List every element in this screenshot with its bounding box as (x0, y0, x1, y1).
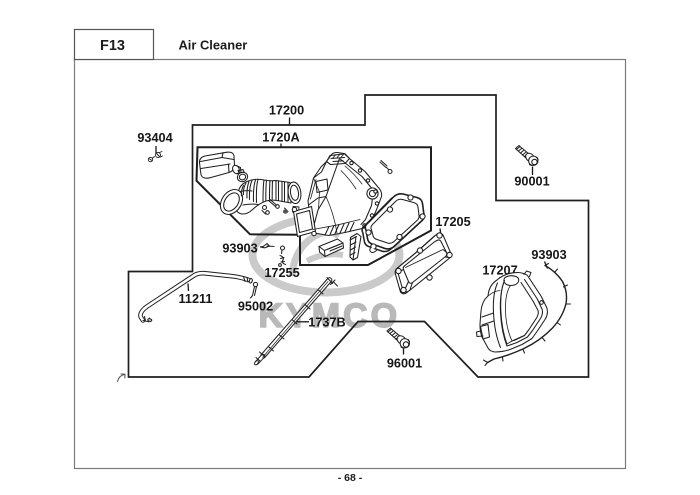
svg-text:17205: 17205 (435, 215, 470, 229)
svg-text:17255: 17255 (264, 266, 299, 280)
svg-text:93903: 93903 (531, 248, 566, 262)
svg-text:F13: F13 (100, 38, 125, 54)
svg-text:96001: 96001 (387, 357, 422, 371)
svg-text:1737B: 1737B (308, 316, 345, 330)
svg-text:17200: 17200 (269, 104, 304, 118)
svg-text:- 68 -: - 68 - (338, 472, 363, 484)
svg-text:90001: 90001 (514, 175, 549, 189)
svg-text:95002: 95002 (238, 300, 273, 314)
svg-text:93404: 93404 (137, 131, 172, 145)
svg-text:1720A: 1720A (262, 131, 299, 145)
svg-text:11211: 11211 (179, 292, 213, 306)
svg-text:93903: 93903 (222, 242, 257, 256)
svg-text:Air Cleaner: Air Cleaner (179, 38, 248, 53)
